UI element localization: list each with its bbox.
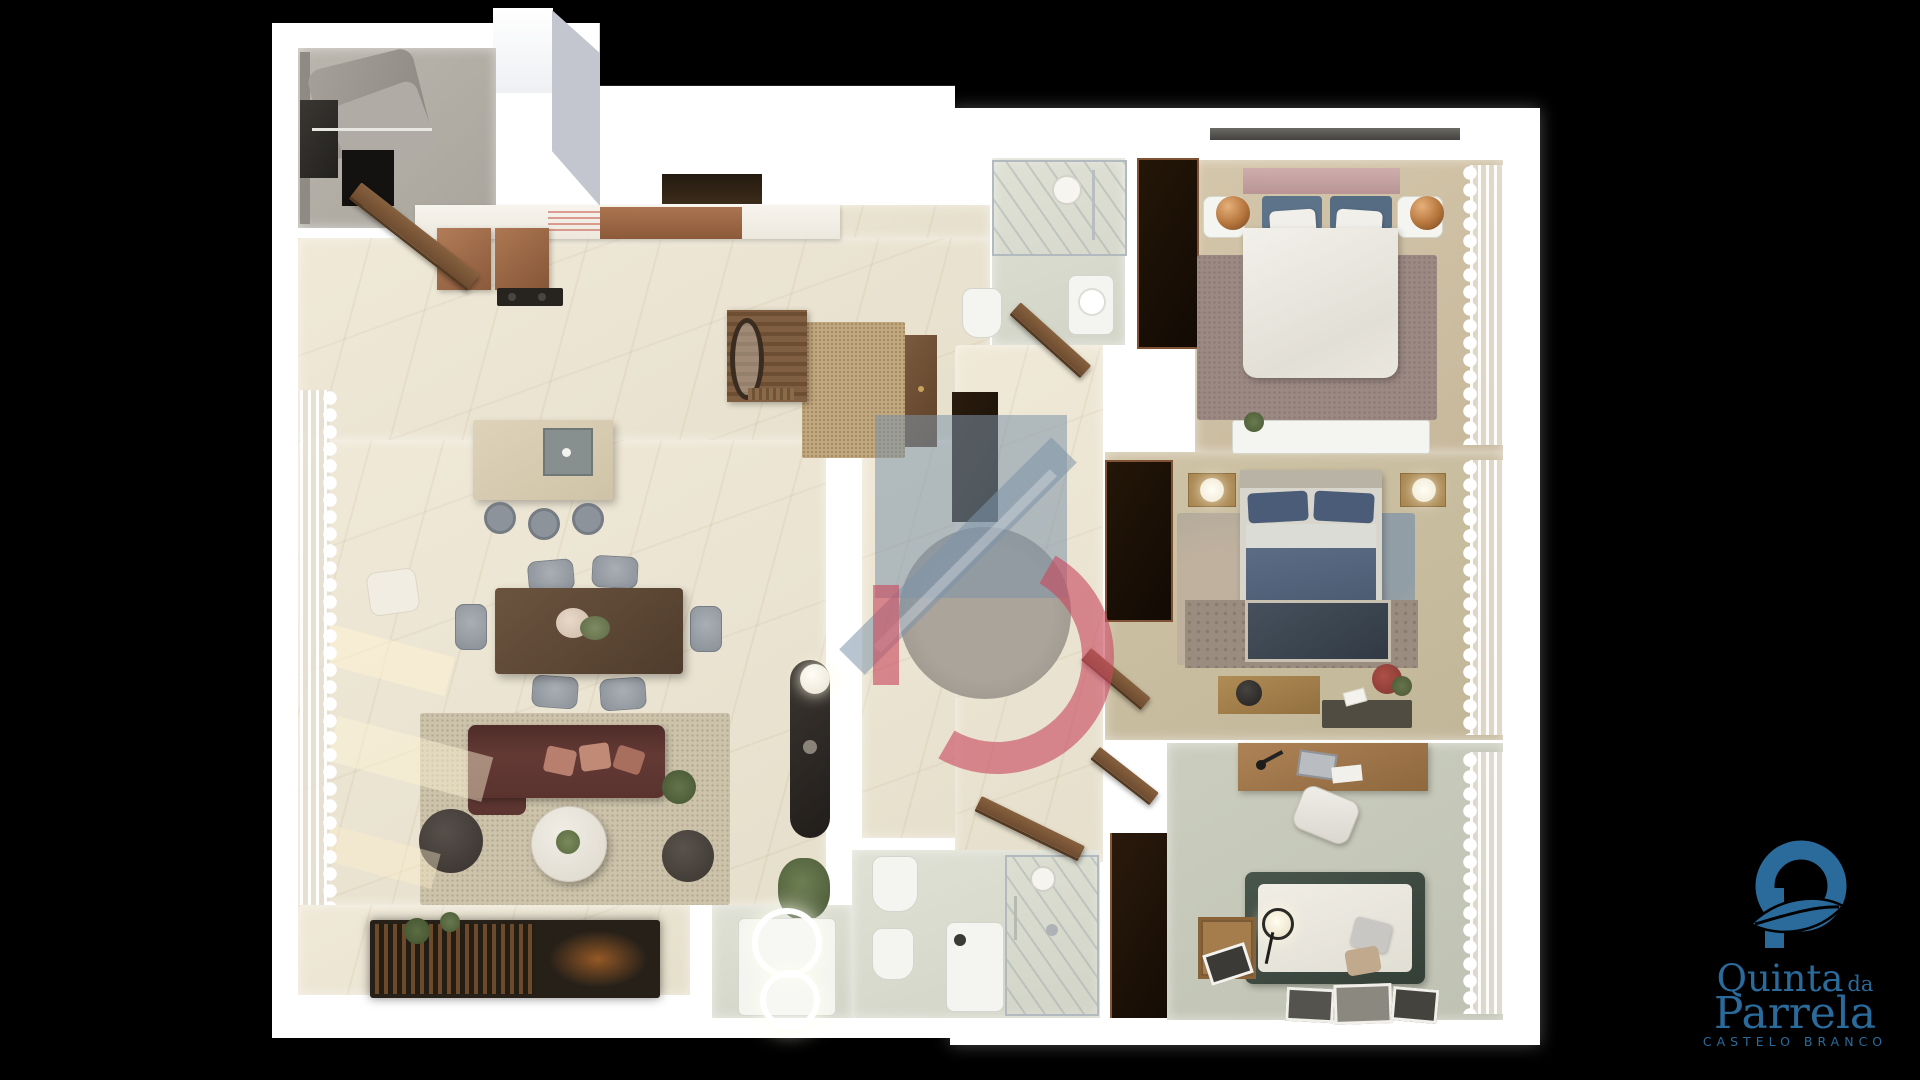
q-leaf-monogram-icon — [1737, 836, 1863, 962]
watermark-d-stem — [873, 585, 899, 685]
watermark-house-d-monogram — [0, 0, 1920, 1080]
watermark-roof-band — [839, 437, 1077, 675]
brand-subtitle: CASTELO BRANCO — [1690, 1036, 1900, 1049]
watermark-d-bowl — [854, 514, 1141, 801]
screenshot-canvas: Quintada Parrela CASTELO BRANCO — [0, 0, 1920, 1080]
brand-name-line2: Parrela — [1690, 992, 1900, 1037]
watermark-roof-highlight — [873, 469, 1057, 653]
watermark-square — [875, 415, 1067, 598]
brand-logo: Quintada Parrela CASTELO BRANCO — [1690, 836, 1900, 1056]
